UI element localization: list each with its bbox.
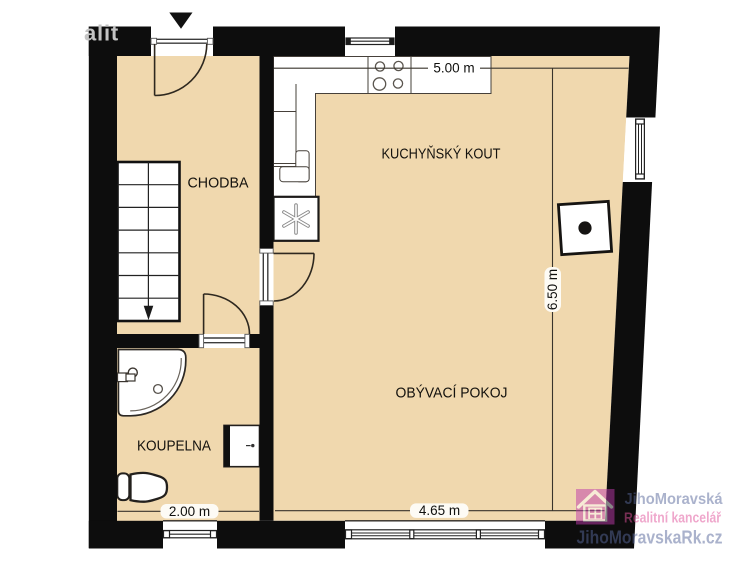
- svg-text:4.65 m: 4.65 m: [419, 503, 460, 518]
- svg-text:KUCHYŇSKÝ KOUT: KUCHYŇSKÝ KOUT: [382, 146, 501, 163]
- svg-text:KOUPELNA: KOUPELNA: [137, 439, 211, 455]
- svg-text:JihoMoravskaRk.cz: JihoMoravskaRk.cz: [577, 527, 723, 548]
- svg-text:5.00 m: 5.00 m: [433, 61, 474, 76]
- svg-text:OBÝVACÍ POKOJ: OBÝVACÍ POKOJ: [396, 385, 508, 402]
- svg-text:CHODBA: CHODBA: [188, 176, 249, 192]
- svg-text:JihoMoravská: JihoMoravská: [625, 491, 723, 508]
- svg-text:Realitní kancelář: Realitní kancelář: [624, 511, 721, 527]
- svg-text:alit: alit: [84, 21, 119, 46]
- svg-text:2.00 m: 2.00 m: [169, 504, 210, 519]
- svg-text:6.50 m: 6.50 m: [545, 269, 560, 310]
